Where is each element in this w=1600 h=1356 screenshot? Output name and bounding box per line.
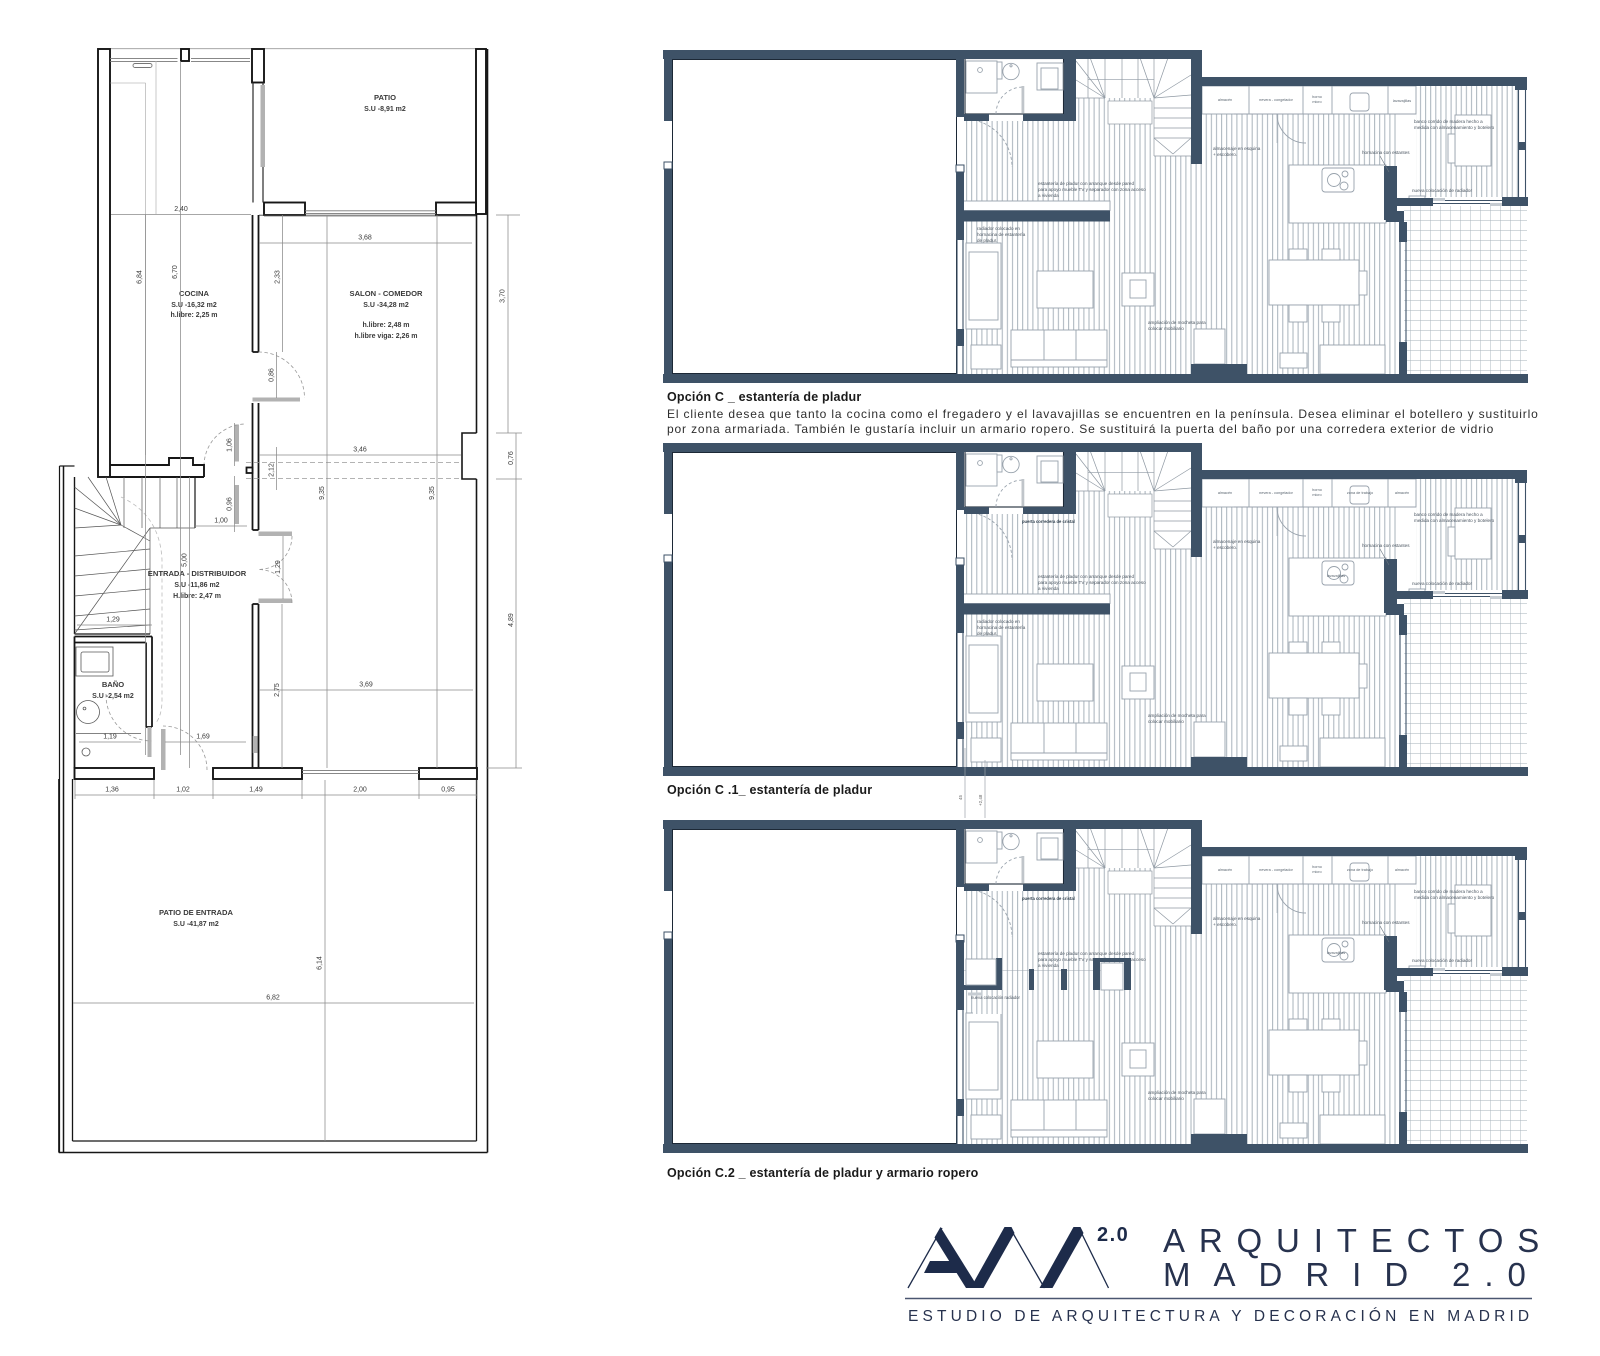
svg-text:Opción C _ estantería de pladu: Opción C _ estantería de pladur [667,390,861,404]
svg-text:h.libre: 2,48 m: h.libre: 2,48 m [362,322,409,329]
svg-text:SALON - COMEDOR: SALON - COMEDOR [350,289,423,298]
svg-text:5,00: 5,00 [182,553,189,567]
svg-text:1,69: 1,69 [196,734,210,741]
svg-text:PATIO DE ENTRADA: PATIO DE ENTRADA [159,908,233,917]
svg-text:ESTUDIO DE ARQUITECTURA Y DECO: ESTUDIO DE ARQUITECTURA Y DECORACIÓN EN … [908,1308,1533,1325]
svg-text:3,68: 3,68 [358,235,372,242]
svg-text:4,89: 4,89 [508,613,515,627]
svg-text:S.U -2,54 m2: S.U -2,54 m2 [92,693,134,700]
svg-text:0,96: 0,96 [227,497,234,511]
svg-text:El cliente desea que tanto la: El cliente desea que tanto la cocina com… [667,407,1539,421]
svg-text:1,00: 1,00 [214,518,228,525]
svg-text:S.U -16,32 m2: S.U -16,32 m2 [171,302,217,309]
svg-text:S.U -34,28 m2: S.U -34,28 m2 [363,302,409,309]
svg-text:COCINA: COCINA [179,289,209,298]
svg-text:2,00: 2,00 [353,787,367,794]
svg-text:+2,48: +2,48 [978,794,983,806]
svg-text:2.0: 2.0 [1452,1256,1540,1293]
svg-text:1,29: 1,29 [106,617,120,624]
svg-text:zona de trabajo: zona de trabajo [1347,868,1373,872]
svg-text:2,33: 2,33 [275,270,282,284]
svg-text:6,70: 6,70 [172,265,179,279]
svg-text:1,36: 1,36 [105,787,119,794]
svg-text:MADRID: MADRID [1163,1256,1431,1293]
svg-text:3,70: 3,70 [500,289,507,303]
svg-text:1,02: 1,02 [176,787,190,794]
svg-text:nueva colocación radiador: nueva colocación radiador [971,995,1020,1000]
svg-text:S.U -8,91 m2: S.U -8,91 m2 [364,106,406,113]
svg-text:0,95: 0,95 [441,787,455,794]
svg-text:zona de trabajo: zona de trabajo [1347,491,1373,495]
svg-text:Opción C.2 _ estantería de pla: Opción C.2 _ estantería de pladur y arma… [667,1166,979,1180]
svg-text:S.U -11,86 m2: S.U -11,86 m2 [174,582,219,589]
svg-text:0,76: 0,76 [508,451,515,465]
svg-text:2.0: 2.0 [1097,1224,1129,1246]
svg-text:45: 45 [958,794,963,800]
svg-text:lavavajillas: lavavajillas [1327,951,1345,955]
svg-text:Opción C .1_ estantería de pla: Opción C .1_ estantería de pladur [667,783,872,797]
svg-text:9,35: 9,35 [319,486,326,500]
svg-text:h.libre viga: 2,26 m: h.libre viga: 2,26 m [354,333,417,340]
svg-text:3,46: 3,46 [353,447,367,454]
svg-text:ARQUITECTOS: ARQUITECTOS [1163,1222,1553,1259]
svg-text:1,29: 1,29 [275,560,282,574]
svg-text:lavavajillas: lavavajillas [1393,99,1411,103]
svg-text:puerta corredera de cristal: puerta corredera de cristal [1022,519,1075,524]
svg-text:almacén: almacén [1395,491,1409,495]
svg-text:2,40: 2,40 [174,206,188,213]
svg-text:2,75: 2,75 [274,683,281,697]
svg-text:lavavajillas: lavavajillas [1327,574,1345,578]
svg-text:6,14: 6,14 [317,956,324,970]
svg-text:6,82: 6,82 [266,995,280,1002]
svg-text:por zona armariada. También le: por zona armariada. También le gustaría … [667,422,1494,436]
svg-text:6,84: 6,84 [137,270,144,284]
svg-text:h.libre: 2,25 m: h.libre: 2,25 m [170,312,217,319]
svg-text:S.U -41,87 m2: S.U -41,87 m2 [173,921,219,928]
svg-text:BAÑO: BAÑO [102,680,124,689]
svg-text:1,49: 1,49 [249,787,263,794]
svg-text:almacén: almacén [1395,868,1409,872]
svg-text:0,86: 0,86 [269,368,276,382]
svg-text:1,19: 1,19 [103,734,117,741]
svg-text:2,12: 2,12 [269,463,276,477]
svg-text:3,69: 3,69 [359,682,373,689]
svg-text:9,35: 9,35 [429,486,436,500]
svg-text:ENTRADA - DISTRIBUIDOR: ENTRADA - DISTRIBUIDOR [148,569,247,578]
svg-text:1,06: 1,06 [227,438,234,452]
svg-text:PATIO: PATIO [374,93,396,102]
svg-text:puerta corredera de cristal: puerta corredera de cristal [1022,896,1075,901]
